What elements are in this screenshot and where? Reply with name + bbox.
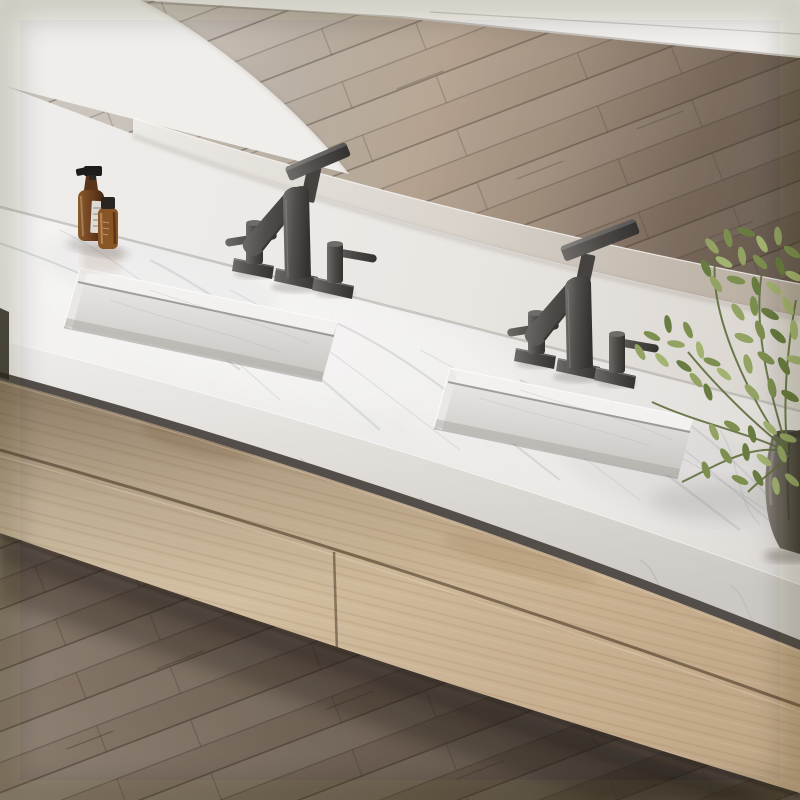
vanity-photo xyxy=(0,0,800,800)
screenshot-root xyxy=(0,0,800,800)
bottle-reflection xyxy=(82,248,120,272)
small-amber-bottle xyxy=(98,197,118,249)
